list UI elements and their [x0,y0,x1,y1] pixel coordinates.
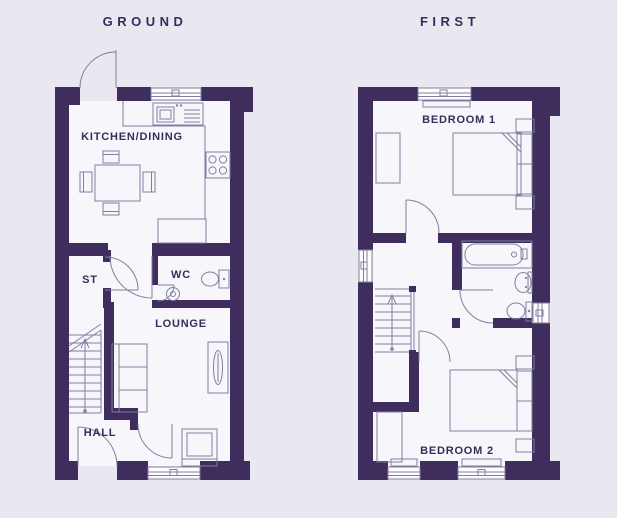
room-label-bedroom2: BEDROOM 2 [420,445,494,457]
room-label-lounge: LOUNGE [155,318,207,330]
room-label-bedroom1: BEDROOM 1 [422,114,496,126]
ground-floor-title: GROUND [103,14,188,29]
room-label-hall: HALL [84,427,117,439]
room-label-kitchen-dining: KITCHEN/DINING [81,131,183,143]
room-label-store: ST [82,274,98,286]
first-floor-title: FIRST [420,14,480,29]
landing-window [359,250,372,282]
first-floor-plan [358,87,560,480]
lounge-window [148,467,200,479]
floorplan-canvas: GROUND FIRST KITCHEN/DINING ST WC LOUNGE… [0,0,617,518]
rear-door [80,50,116,88]
floorplan-drawing [0,0,617,518]
bathroom-window [533,303,549,323]
ground-floor-plan [55,50,253,480]
room-label-wc: WC [171,269,191,281]
kitchen-window [151,88,201,100]
